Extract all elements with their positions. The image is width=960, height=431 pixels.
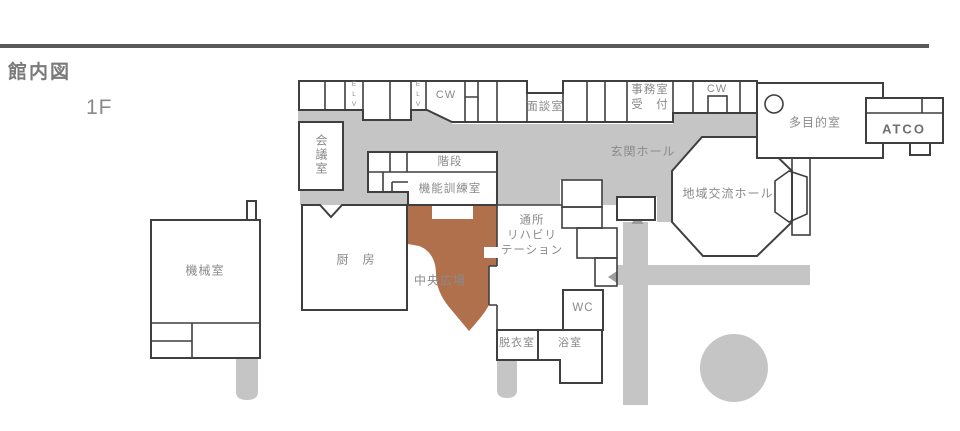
room-label-cw-2: CW	[707, 83, 727, 97]
entrance-vestibule	[617, 197, 655, 220]
room-label-multipurpose: 多目的室	[789, 116, 841, 131]
room-label-bath: 浴室	[558, 337, 582, 351]
room-label-meeting: 会議室	[315, 134, 327, 176]
floorplan-svg	[0, 0, 960, 431]
east-walkway	[617, 265, 810, 285]
page-title: 館内図	[8, 61, 71, 85]
tree-circle	[700, 334, 768, 402]
room-label-office: 事務室 受 付	[631, 83, 669, 113]
room-label-stairs: 階段	[438, 155, 463, 169]
room-label-community-hall: 地域交流ホール	[682, 187, 773, 202]
atco-logo-text: ATCO	[882, 122, 926, 137]
room-label-dressing: 脱衣室	[499, 337, 535, 351]
entrance-arrow-left	[608, 271, 617, 283]
room-label-interview: 面談室	[526, 100, 564, 114]
floor-map: 館内図 1F 機械室 会議室 E L V E L V CW 面談室 事務室 受 …	[0, 0, 960, 431]
room-label-entrance-hall: 玄関ホール	[610, 145, 675, 160]
plaza-brown-path	[408, 205, 497, 331]
room-label-elv-1: E L V	[352, 80, 356, 110]
room-label-plaza: 中央広場	[414, 274, 466, 289]
top-divider-bar	[0, 44, 929, 48]
room-label-kitchen: 厨 房	[336, 253, 375, 268]
room-label-machine: 機械室	[185, 264, 224, 279]
room-label-elv-2: E L V	[416, 80, 420, 110]
room-label-training: 機能訓練室	[419, 182, 482, 196]
room-label-rehab: 通所 リハビリ テーション	[501, 214, 563, 259]
room-label-cw-1: CW	[436, 89, 456, 103]
room-label-wc: WC	[572, 301, 593, 315]
floor-label: 1F	[86, 95, 113, 121]
machine-room	[151, 220, 260, 358]
south-walkway	[623, 222, 648, 405]
